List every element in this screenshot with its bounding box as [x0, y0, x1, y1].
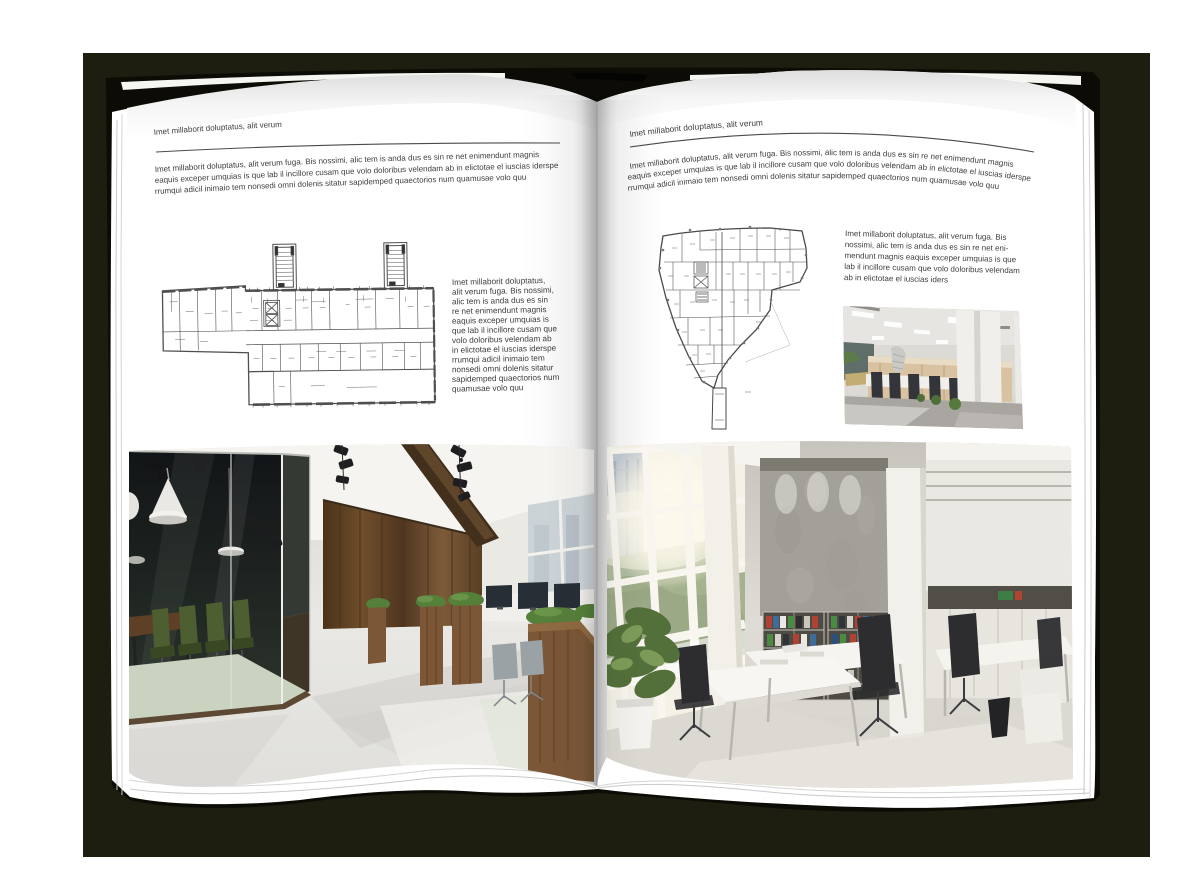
svg-text:quamusae volo quu: quamusae volo quu [452, 383, 524, 394]
